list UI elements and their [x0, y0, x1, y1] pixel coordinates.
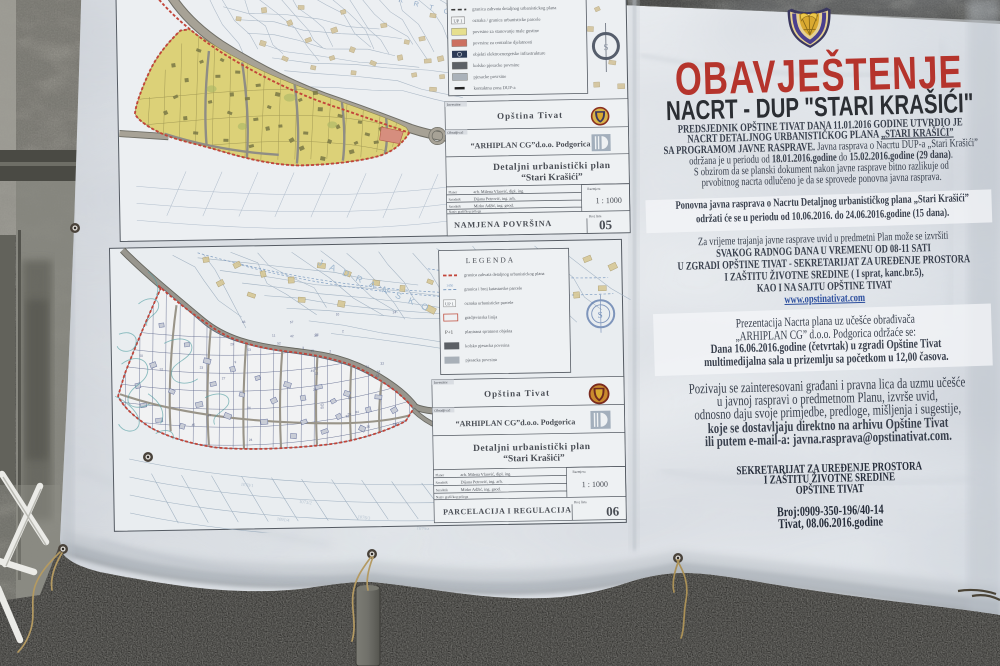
- svg-text:11: 11: [272, 333, 276, 337]
- svg-text:gradjevinska linija: gradjevinska linija: [465, 314, 498, 320]
- svg-text:58: 58: [139, 354, 143, 358]
- svg-text:27: 27: [222, 376, 226, 380]
- svg-text:oznaka urbanisticke parcele: oznaka urbanisticke parcele: [464, 300, 513, 306]
- svg-text:39: 39: [314, 334, 318, 338]
- svg-text:23: 23: [200, 366, 204, 370]
- svg-text:Saradnik: Saradnik: [449, 197, 461, 201]
- svg-text:48: 48: [242, 320, 246, 324]
- svg-text:“Stari Krašići”: “Stari Krašići”: [503, 452, 565, 464]
- svg-text:47: 47: [207, 414, 211, 418]
- svg-text:UP 1: UP 1: [453, 18, 462, 23]
- svg-text:26: 26: [247, 406, 251, 410]
- svg-text:Obradjivač: Obradjivač: [434, 408, 450, 412]
- svg-text:Investitor: Investitor: [447, 103, 462, 107]
- svg-text:1 : 1000: 1 : 1000: [582, 480, 608, 489]
- svg-text:Detaljni urbanistički plan: Detaljni urbanistički plan: [473, 442, 591, 454]
- svg-text:05: 05: [599, 217, 613, 232]
- svg-text:Opština Tivat: Opština Tivat: [484, 388, 550, 399]
- svg-text:Saradnik: Saradnik: [436, 488, 448, 492]
- svg-text:S: S: [603, 42, 608, 52]
- svg-text:42: 42: [290, 334, 294, 338]
- svg-text:Broj lista: Broj lista: [574, 500, 587, 504]
- svg-text:57: 57: [290, 320, 294, 324]
- svg-text:Detaljni urbanistički plan: Detaljni urbanistički plan: [493, 161, 611, 173]
- svg-text:Naziv grafičkog priloga: Naziv grafičkog priloga: [449, 209, 482, 214]
- svg-text:Planer: Planer: [448, 190, 458, 194]
- svg-text:pjesacka povrsina: pjesacka povrsina: [465, 357, 496, 363]
- svg-text:2: 2: [342, 329, 344, 333]
- svg-text:povrsine za centralne djelatno: povrsine za centralne djelatnosti: [473, 39, 533, 45]
- svg-text:9: 9: [234, 360, 236, 364]
- svg-text:2: 2: [329, 349, 331, 353]
- svg-text:Razmjera: Razmjera: [572, 470, 586, 474]
- svg-text:planirana spratnost objekta: planirana spratnost objekta: [465, 328, 512, 334]
- svg-text:P+1: P+1: [445, 331, 454, 336]
- svg-text:52: 52: [160, 367, 164, 371]
- svg-text:13: 13: [310, 349, 314, 353]
- svg-text:Opština Tivat: Opština Tivat: [497, 110, 563, 121]
- svg-text:45: 45: [192, 423, 196, 427]
- svg-text:1 : 1000: 1 : 1000: [596, 196, 622, 205]
- svg-text:55: 55: [348, 396, 352, 400]
- svg-text:Saradnik: Saradnik: [436, 480, 448, 484]
- svg-text:29: 29: [230, 342, 234, 346]
- svg-text:29: 29: [347, 412, 351, 416]
- svg-text:34: 34: [355, 410, 359, 414]
- svg-text:granica i broj katastarske par: granica i broj katastarske parcele: [464, 286, 522, 292]
- svg-text:45: 45: [320, 406, 324, 410]
- svg-text:47: 47: [315, 367, 319, 371]
- svg-text:NAMJENA POVRŠINA: NAMJENA POVRŠINA: [454, 218, 552, 230]
- svg-text:kolsko pjesacke povrsine: kolsko pjesacke povrsine: [473, 62, 519, 68]
- svg-text:32: 32: [381, 362, 385, 366]
- svg-text:24: 24: [393, 310, 397, 314]
- svg-text:06: 06: [606, 503, 620, 518]
- svg-text:10: 10: [336, 312, 340, 316]
- svg-text:“Stari Krašići”: “Stari Krašići”: [521, 171, 583, 183]
- svg-text:51: 51: [366, 365, 370, 369]
- svg-text:S: S: [598, 310, 603, 320]
- svg-text:Saradnik: Saradnik: [449, 204, 461, 208]
- svg-text:35: 35: [367, 425, 371, 429]
- svg-text:Investitor: Investitor: [434, 380, 449, 384]
- svg-text:3: 3: [302, 346, 304, 350]
- svg-text:Obradjivač: Obradjivač: [447, 131, 463, 135]
- svg-text:UP 1: UP 1: [445, 301, 454, 306]
- svg-text:24: 24: [313, 388, 317, 392]
- svg-text:LEGENDA: LEGENDA: [466, 255, 516, 265]
- svg-text:52: 52: [277, 341, 281, 345]
- svg-text:24: 24: [249, 438, 253, 442]
- svg-text:53: 53: [247, 348, 251, 352]
- svg-text:Naziv grafičkog priloga: Naziv grafičkog priloga: [436, 495, 469, 500]
- svg-text:kolsko pjesacka povrsina: kolsko pjesacka povrsina: [465, 343, 509, 349]
- svg-text:pjesacke povrsine: pjesacke povrsine: [473, 74, 506, 80]
- svg-text:Razmjera: Razmjera: [587, 187, 601, 191]
- svg-text:1450: 1450: [446, 284, 453, 288]
- svg-text:12: 12: [315, 372, 319, 376]
- svg-text:kontaktna zona DUP-a: kontaktna zona DUP-a: [474, 85, 516, 91]
- svg-text:Planer: Planer: [435, 473, 445, 477]
